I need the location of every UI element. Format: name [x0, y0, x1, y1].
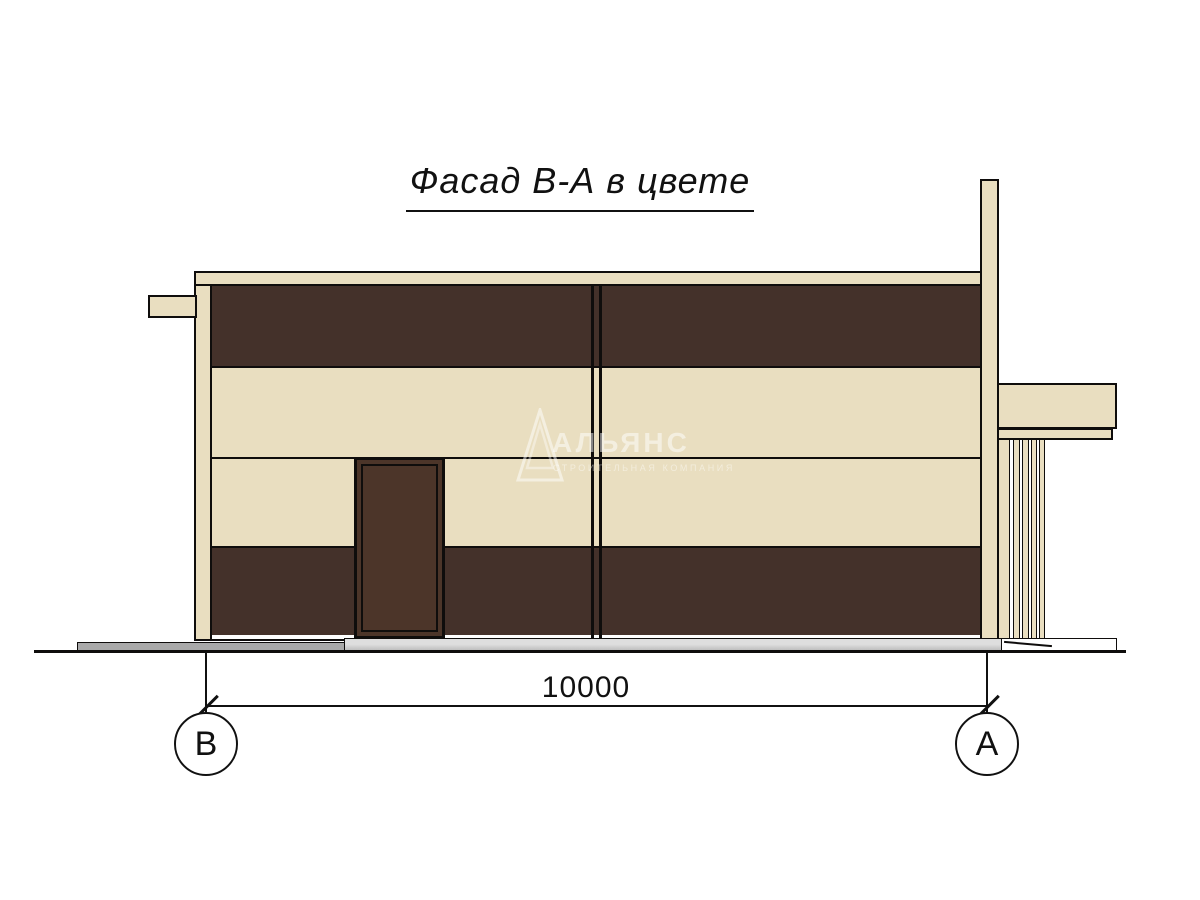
drawing-title-text: Фасад В-А в цвете: [406, 160, 755, 212]
dimension-value: 10000: [486, 671, 686, 705]
dimension-line: [205, 705, 988, 707]
axis-marker-b: В: [174, 712, 238, 776]
left-wall-ledge: [148, 295, 197, 318]
side-canopy: [997, 383, 1117, 429]
drawing-sheet: { "drawing": { "title": "Фасад В-А в цве…: [0, 0, 1200, 900]
drawing-title: Фасад В-А в цвете: [340, 160, 820, 212]
wall-band-brown-top: [212, 286, 980, 366]
right-corner-post: [980, 179, 999, 641]
slat-bar: [998, 439, 1010, 641]
left-corner-pilaster: [194, 284, 212, 641]
side-canopy-trim: [997, 428, 1113, 440]
slat-bar: [1031, 439, 1037, 641]
wall-band-brown-bottom: [212, 546, 980, 635]
axis-marker-a: А: [955, 712, 1019, 776]
axis-marker-b-label: В: [195, 725, 218, 764]
wall-band-cream-upper: [212, 366, 980, 457]
ground-line: [34, 650, 1126, 653]
axis-marker-a-label: А: [976, 725, 999, 764]
panel-seam-right-line: [599, 286, 602, 639]
roof-fascia: [194, 271, 999, 286]
facade-wall: [210, 284, 982, 641]
door-leaf-frame: [361, 464, 438, 632]
slat-bar: [1022, 439, 1029, 641]
slat-bar: [1013, 439, 1020, 641]
side-column-slats: [998, 439, 1045, 641]
panel-seam-left-line: [591, 286, 594, 639]
entrance-door: [354, 457, 445, 639]
slat-bar: [1039, 439, 1045, 641]
wall-band-cream-lower: [212, 457, 980, 546]
